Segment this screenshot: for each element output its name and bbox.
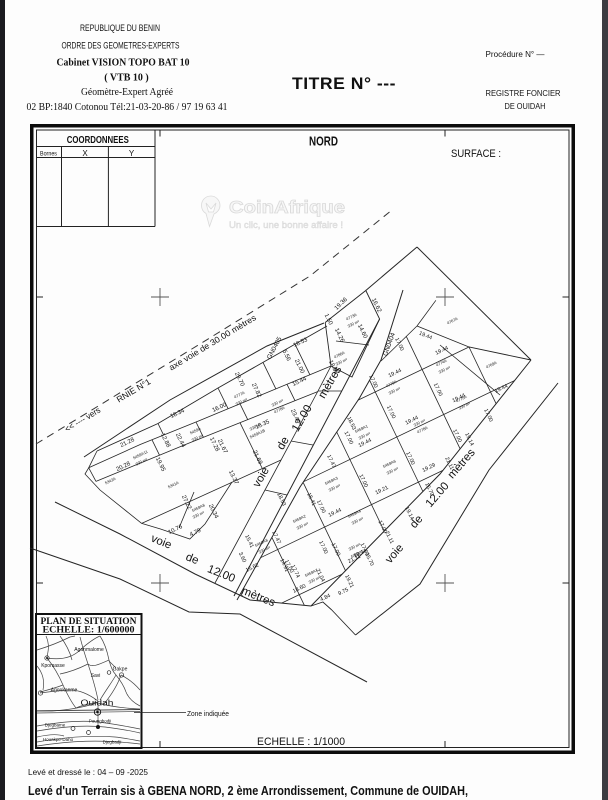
svg-text:Géomètre-Expert Agréé: Géomètre-Expert Agréé: [81, 87, 173, 98]
svg-text:Poungbodji: Poungbodji: [89, 719, 112, 724]
svg-text:( VTB 10 ): ( VTB 10 ): [104, 72, 149, 84]
svg-text:REGISTRE FONCIER: REGISTRE FONCIER: [486, 88, 561, 98]
svg-text:Ouidah: Ouidah: [81, 698, 114, 708]
svg-text:X: X: [82, 149, 88, 158]
svg-text:DE OUIDAH: DE OUIDAH: [505, 101, 546, 111]
svg-text:Djegbame: Djegbame: [45, 723, 66, 728]
svg-text:Levé d'un Terrain sis à GBENA: Levé d'un Terrain sis à GBENA NORD, 2 èm…: [28, 784, 468, 798]
svg-text:Bornes: Bornes: [40, 151, 58, 158]
svg-text:Procédure N° —: Procédure N° —: [486, 50, 545, 59]
svg-text:REPUBLIQUE DU BENIN: REPUBLIQUE DU BENIN: [80, 23, 160, 33]
svg-text:ECHELLE : 1/1000: ECHELLE : 1/1000: [257, 736, 345, 748]
svg-text:ECHELLE: 1/600000: ECHELLE: 1/600000: [43, 625, 136, 635]
svg-text:Un clic, une bonne affaire !: Un clic, une bonne affaire !: [229, 220, 343, 231]
svg-text:Levé et dressé le : 04 – 09 -2: Levé et dressé le : 04 – 09 -2025: [28, 767, 148, 777]
svg-text:Djegbadji: Djegbadji: [103, 740, 122, 745]
svg-text:NORD: NORD: [309, 134, 338, 149]
svg-text:02 BP:1840 Cotonou Tél:21-03-2: 02 BP:1840 Cotonou Tél:21-03-20-86 / 97 …: [27, 102, 228, 113]
svg-text:Cabinet VISION TOPO BAT 10: Cabinet VISION TOPO BAT 10: [57, 57, 190, 69]
svg-text:CoinAfrique: CoinAfrique: [229, 197, 345, 217]
svg-text:TITRE N° ---: TITRE N° ---: [292, 74, 396, 93]
svg-text:Zone indiquée: Zone indiquée: [187, 711, 229, 718]
svg-text:Agonkanme: Agonkanme: [51, 688, 78, 694]
svg-text:Houakpe-Daho: Houakpe-Daho: [43, 737, 74, 742]
svg-text:Y: Y: [129, 149, 135, 158]
svg-text:ORDRE DES GEOMETRES-EXPERTS: ORDRE DES GEOMETRES-EXPERTS: [62, 41, 180, 52]
svg-text:Aganmalome: Aganmalome: [74, 647, 104, 653]
svg-text:Savi: Savi: [91, 673, 101, 679]
svg-text:COORDONNEES: COORDONNEES: [67, 134, 129, 146]
svg-text:Gakpe: Gakpe: [113, 667, 128, 673]
svg-text:Kpomasse: Kpomasse: [41, 663, 65, 669]
svg-text:SURFACE :: SURFACE :: [451, 148, 501, 160]
